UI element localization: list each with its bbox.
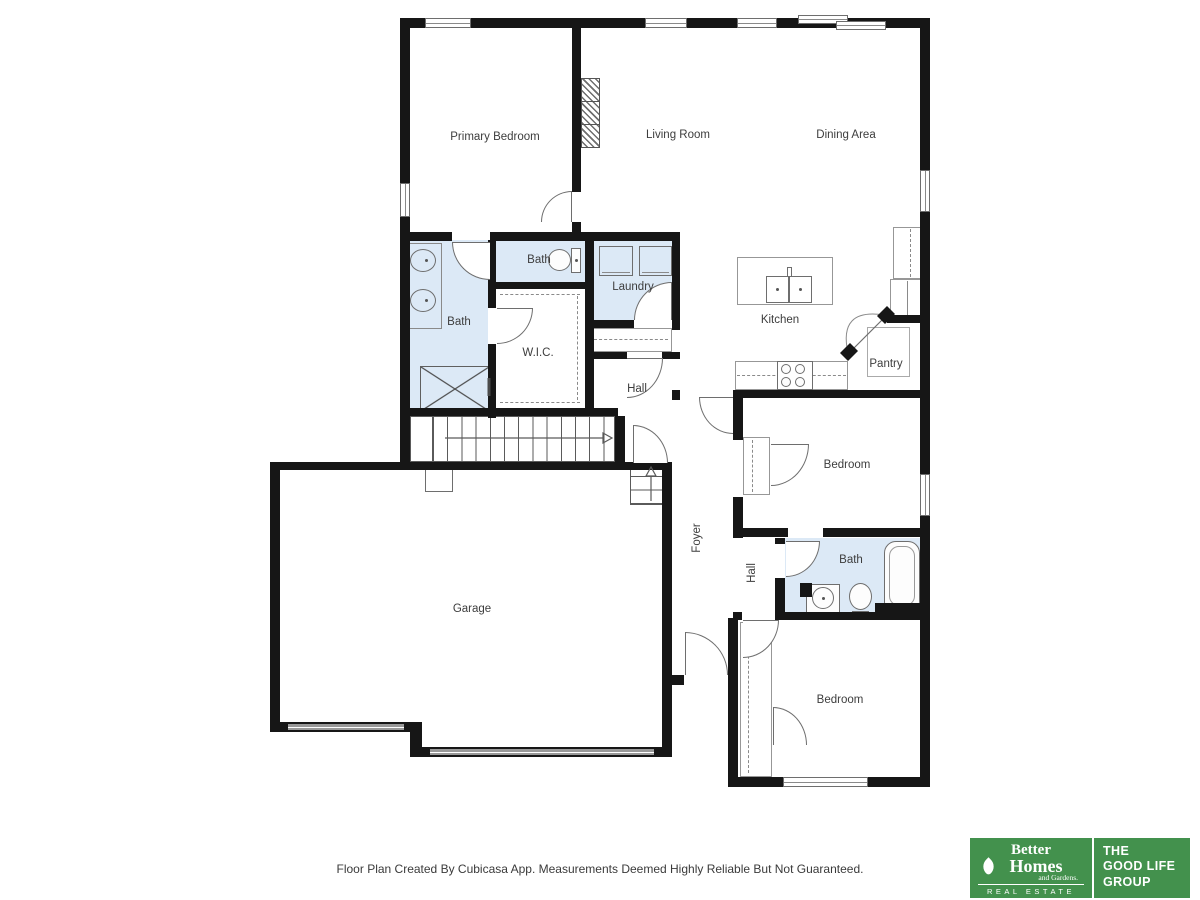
hall-closet [590,328,672,352]
room-label: Pantry [869,358,902,370]
sliding-window [836,21,886,30]
brokerage-logo: Better Homes and Gardens. REAL ESTATE TH… [970,838,1190,898]
window [783,777,868,787]
window [737,18,777,28]
wall [400,408,618,416]
fireplace [581,78,600,148]
sink-drain [425,259,428,262]
burner [795,377,805,387]
sink-drain [822,597,825,600]
logo-text: GROUP [1103,875,1190,890]
wall [728,675,738,685]
wall [672,675,684,685]
window [400,183,410,217]
toilet [548,249,571,271]
sink-drain [425,299,428,302]
wall [400,18,410,470]
burner [781,377,791,387]
wall [775,538,785,544]
wall [823,528,928,537]
wall [672,390,680,400]
room-label: Living Room [646,129,710,141]
wall [615,416,625,463]
garage-door [288,724,404,730]
room-label: Kitchen [761,314,799,326]
sink-drain [799,288,802,291]
washer-door [602,272,630,273]
door-bedroom-2-closet [773,707,807,745]
front-door [685,632,728,675]
wall [585,320,634,328]
floor-plan-page: Primary Bedroom Living Room Dining Area … [0,0,1200,900]
wall [590,352,627,359]
sink [410,289,436,312]
wall [733,528,788,537]
shower [420,366,490,412]
wall [662,352,680,359]
closet-rod [594,339,668,340]
wall [728,618,738,778]
toilet-button [575,259,578,262]
closet-shelf [577,296,578,400]
door-hall-foyer [699,397,733,434]
room-label: Primary Bedroom [450,131,539,143]
room-label: W.I.C. [522,347,553,359]
door-stair-foyer [633,425,668,463]
counter-edge [910,229,911,277]
faucet [787,267,792,277]
room-label: Bath [839,554,863,566]
wall [270,462,672,470]
wall [672,232,680,330]
closet-shelf [500,294,580,295]
door-bedroom-2 [743,620,779,658]
wall [920,18,930,785]
room-label: Hall [627,383,647,395]
room-label: Bedroom [817,694,864,706]
toilet [849,583,872,610]
logo-text: THE [1103,844,1190,859]
room-label: Bath [447,316,471,328]
stair-landing [410,416,433,462]
room-label: Hall [746,563,758,583]
wall [496,282,586,289]
window [920,474,930,516]
wall [778,612,928,620]
room-label: Laundry [612,281,654,293]
window [645,18,687,28]
burner [795,364,805,374]
sink [410,249,436,272]
room-label: Bedroom [824,459,871,471]
good-life-group-logo: THE GOOD LIFE GROUP [1094,838,1190,898]
burner [781,364,791,374]
sink-drain [776,288,779,291]
wall [733,392,743,440]
room-label: Garage [453,603,491,615]
logo-text: REAL ESTATE [978,884,1084,896]
wall [400,232,452,241]
wall [887,315,930,323]
room-label: Foyer [691,523,703,552]
garage-door [430,749,654,755]
window [920,170,930,212]
wall [662,462,672,757]
bathtub-inner [889,546,915,606]
better-homes-gardens-logo: Better Homes and Gardens. REAL ESTATE [970,838,1094,898]
door-primary-bedroom [541,191,572,222]
wall [800,583,812,597]
wall [488,344,496,418]
closet-shelf [500,402,580,403]
wall [868,777,930,787]
wall [728,777,783,787]
door-bedroom-1 [771,444,809,486]
door-wic [497,308,533,344]
wall [840,343,858,361]
dryer-door [642,272,669,273]
room-label: Dining Area [816,129,875,141]
fridge-door [907,281,908,315]
closet [743,437,770,495]
room-label: Bath [527,254,551,266]
closet-rod [752,440,753,492]
stairs [432,416,615,462]
window [425,18,471,28]
wall [572,18,581,192]
wall [733,390,928,398]
logo-text: Homes [980,858,1092,874]
logo-text: GOOD LIFE [1103,859,1190,874]
wall [270,462,280,730]
